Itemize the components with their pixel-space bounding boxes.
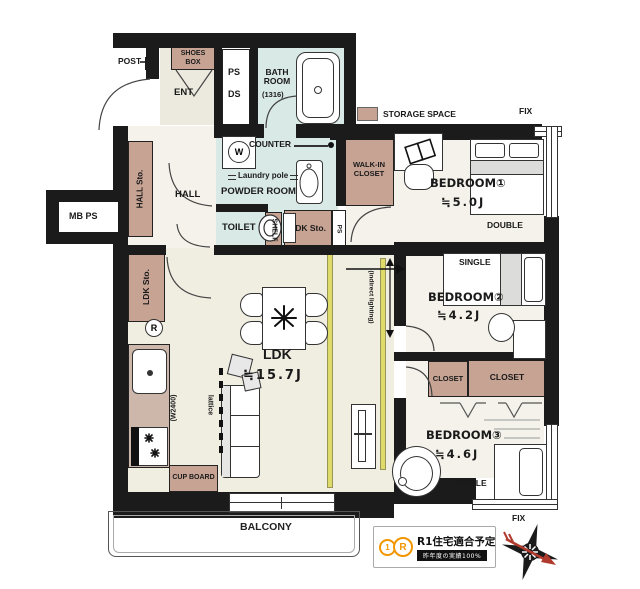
bathroom-size-label: (1316) bbox=[262, 90, 284, 99]
bathtub-drain bbox=[315, 87, 322, 94]
toilet-door-arc bbox=[177, 224, 210, 247]
r1-logo-1-text: 1 bbox=[385, 543, 389, 552]
bedroom3-door-arc bbox=[406, 367, 432, 396]
entry-arrow bbox=[346, 264, 405, 274]
hall-label: HALL bbox=[175, 189, 200, 200]
laundry-pole-label: Laundry pole bbox=[238, 171, 288, 180]
shelf-label: SHELF bbox=[271, 219, 278, 242]
floorplan-linework bbox=[0, 0, 640, 589]
mb-ps-label: MB PS bbox=[69, 211, 98, 221]
bath-door-arc bbox=[266, 96, 297, 128]
indirect-lighting-arrow bbox=[386, 258, 394, 338]
bedroom3-size-label: ≒4.6J bbox=[435, 447, 479, 461]
ldk-label: LDK bbox=[263, 346, 292, 362]
ps-small-label: PS bbox=[336, 225, 343, 234]
bathroom-label: BATH ROOM bbox=[255, 68, 299, 87]
kitchen-width-label: (W2400) bbox=[171, 395, 178, 422]
powder-room-label: POWDER ROOM bbox=[221, 186, 296, 197]
r1-badge: 1 R R1住宅適合予定 昨年度の実績100% bbox=[373, 526, 496, 568]
bedroom2-door-arc bbox=[406, 326, 434, 351]
front-door-arc bbox=[99, 79, 150, 130]
ldk-storage-left-label: LDK Sto. bbox=[141, 269, 151, 305]
stove-burners bbox=[145, 434, 159, 457]
fix-bottom-label: FIX bbox=[512, 513, 525, 523]
r1-badge-text: R1住宅適合予定 昨年度の実績100% bbox=[417, 534, 495, 561]
toilet-label: TOILET bbox=[222, 222, 256, 233]
legend-storage-swatch bbox=[357, 107, 378, 121]
r1-badge-title: R1住宅適合予定 bbox=[417, 534, 495, 549]
fix-top-label: FIX bbox=[519, 106, 532, 116]
plant-icon bbox=[272, 306, 296, 329]
bedroom1-bed-label: DOUBLE bbox=[487, 220, 523, 230]
hall-storage-label: HALL Sto. bbox=[136, 170, 145, 209]
laundry-pole-mark-left bbox=[228, 175, 236, 180]
bedroom3-label: BEDROOM③ bbox=[426, 428, 502, 442]
counter-label: COUNTER bbox=[249, 139, 291, 149]
legend-storage-label: STORAGE SPACE bbox=[383, 109, 456, 119]
washbasin-bowl bbox=[300, 164, 318, 197]
bedroom1-label: BEDROOM① bbox=[430, 176, 506, 190]
r1-logo: 1 R bbox=[379, 537, 413, 557]
ps-label: PS bbox=[228, 67, 240, 77]
ds-label: DS bbox=[228, 89, 241, 99]
floor-plan: SHOES BOX CUP BOARD LDK Sto. WALK-IN CLO… bbox=[0, 0, 640, 589]
hall-ldk-door-arc bbox=[167, 257, 211, 298]
ldk-size-label: ≒15.7J bbox=[243, 368, 303, 383]
indirect-lighting-label: (indirect lighting) bbox=[368, 270, 375, 323]
r1-logo-circle-r: R bbox=[393, 537, 413, 557]
laundry-pole-mark-right bbox=[290, 175, 298, 180]
wic-door-arc bbox=[351, 207, 391, 242]
r1-badge-subtitle: 昨年度の実績100% bbox=[417, 550, 487, 561]
bedroom3-bed-label: SINGLE bbox=[455, 478, 487, 488]
r1-logo-r-text: R bbox=[399, 542, 406, 553]
balcony-label: BALCONY bbox=[240, 521, 292, 533]
bedroom2-label: BEDROOM② bbox=[428, 290, 504, 304]
bedroom2-bed-label: SINGLE bbox=[459, 257, 491, 267]
book-icon bbox=[405, 139, 435, 163]
post-label: POST bbox=[118, 56, 141, 66]
bedroom2-size-label: ≒4.2J bbox=[437, 308, 481, 322]
ent-label: ENT bbox=[174, 87, 193, 98]
bedroom1-size-label: ≒5.0J bbox=[441, 195, 485, 209]
lattice-label: lattice bbox=[207, 395, 214, 415]
